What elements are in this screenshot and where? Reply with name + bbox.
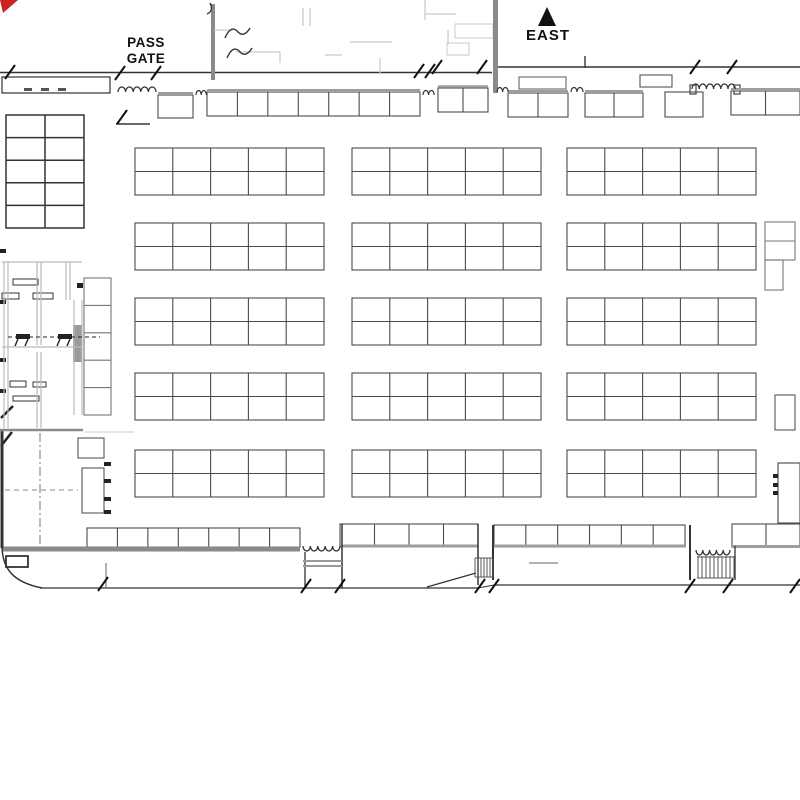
wall-mark: [0, 300, 6, 304]
curved-outer-wall: [2, 548, 42, 588]
wall-top-booth: [519, 77, 566, 89]
connector-hook: [67, 339, 70, 346]
break-symbol: [227, 48, 252, 58]
door-jamb: [773, 491, 778, 495]
dimension-tick: [414, 64, 424, 78]
wall-mark: [0, 358, 6, 362]
floorplan-page: PASS GATE EAST: [0, 0, 800, 800]
coil-door: [696, 550, 730, 555]
top-left-strip: [2, 77, 110, 93]
break-symbol: [207, 3, 211, 14]
door-jamb: [104, 479, 111, 483]
wall-mark: [0, 249, 6, 253]
equipment-bar: [33, 293, 53, 299]
connector-hook: [57, 339, 60, 346]
coil-door: [303, 546, 340, 551]
back-room-outline: [455, 24, 493, 38]
door-swing: [196, 91, 206, 96]
door-swing: [423, 90, 434, 95]
right-edge-booth: [778, 463, 800, 523]
dimension-tick: [790, 579, 800, 593]
pass-gate-line1: PASS: [112, 35, 180, 51]
floorplan-svg: [0, 0, 800, 800]
dimension-tick: [335, 579, 345, 593]
east-arrow-icon: [538, 7, 556, 26]
diagonal-mark: [1, 406, 13, 418]
pass-gate-line2: GATE: [112, 51, 180, 67]
door-swing: [497, 87, 508, 92]
strip-notch: [58, 88, 66, 91]
red-flag-icon: [0, 0, 18, 13]
booth-single: [665, 92, 703, 117]
booth-single: [158, 95, 193, 118]
door-jamb: [77, 283, 83, 288]
equipment-bar: [13, 396, 39, 401]
connector-hook: [15, 339, 18, 346]
coil-door: [118, 87, 156, 92]
door-bay-booth: [82, 468, 104, 513]
connector-hook: [25, 339, 28, 346]
bottom-booth-row: [87, 528, 300, 547]
strip-notch: [24, 88, 32, 91]
dimension-tick: [723, 579, 733, 593]
pass-gate-label: PASS GATE: [112, 35, 180, 66]
back-room-outline: [447, 43, 469, 55]
coil-door: [692, 84, 735, 89]
equipment-bar: [10, 381, 26, 387]
right-edge-booth: [765, 260, 783, 290]
door-swing: [571, 88, 583, 93]
equipment-bar: [13, 279, 38, 285]
door-jamb: [104, 462, 111, 466]
door-jamb: [773, 474, 778, 478]
wall-top-booth: [640, 75, 672, 87]
dimension-tick: [117, 110, 127, 124]
right-edge-booth: [775, 395, 795, 430]
wall-mark: [0, 389, 6, 393]
dimension-tick: [685, 579, 695, 593]
door-jamb: [104, 497, 111, 501]
equipment-bar: [33, 382, 46, 387]
wall-bracket: [6, 556, 28, 567]
diagonal-wall: [427, 573, 476, 587]
dimension-tick: [475, 579, 485, 593]
top-booth-row: [207, 92, 420, 116]
left-booth-strip: [84, 278, 111, 415]
east-label: EAST: [517, 27, 579, 44]
door-jamb: [104, 510, 111, 514]
door-bay-booth: [78, 438, 104, 458]
door-jamb: [773, 483, 778, 487]
strip-notch: [41, 88, 49, 91]
dimension-tick: [301, 579, 311, 593]
